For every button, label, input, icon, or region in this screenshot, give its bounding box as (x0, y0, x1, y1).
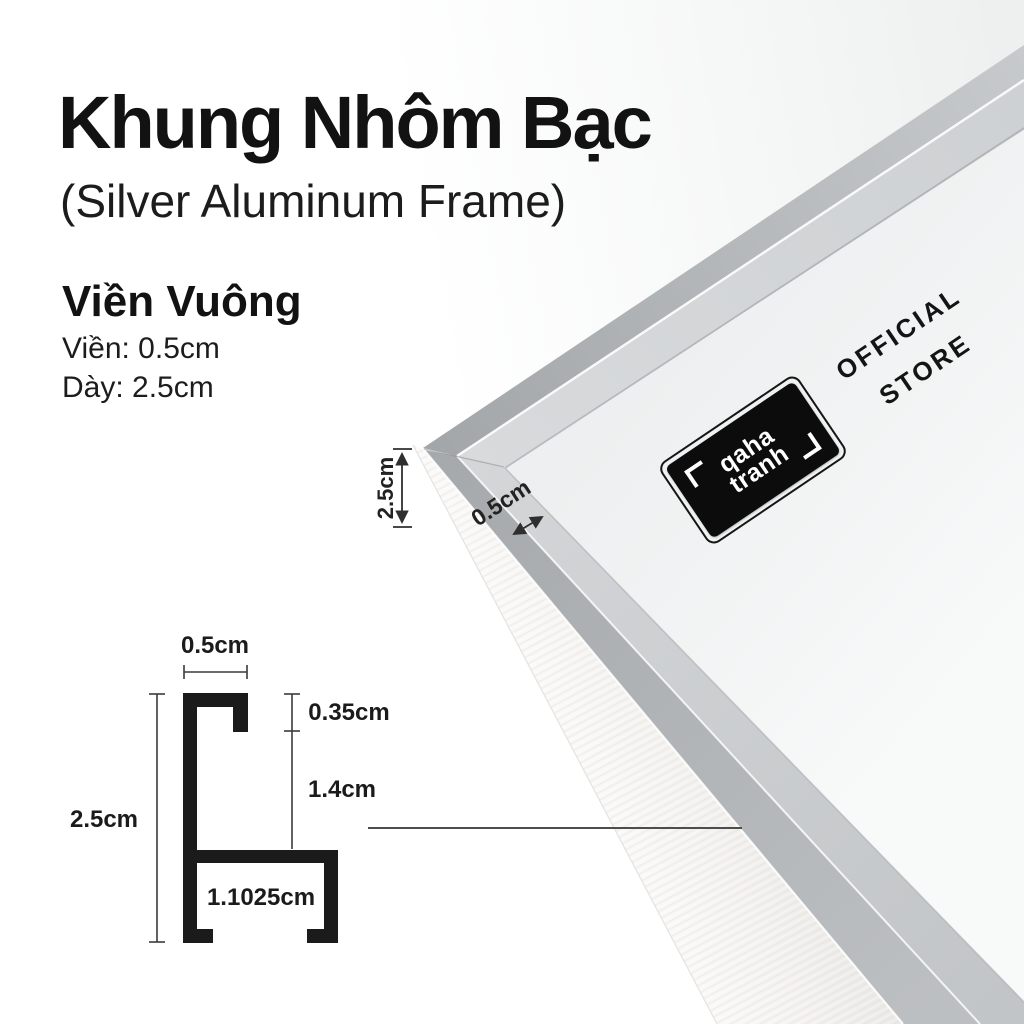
page-subtitle: (Silver Aluminum Frame) (60, 174, 566, 228)
diagram-top-width-label: 0.5cm (181, 632, 249, 660)
spec-heading: Viền Vuông (62, 277, 302, 327)
diagram-inner-depth-label: 1.4cm (308, 776, 376, 804)
crop-mark-left-icon (684, 460, 712, 488)
page-title: Khung Nhôm Bạc (58, 84, 651, 162)
diagram-bottom-width-label: 1.1025cm (207, 884, 315, 912)
infographic-canvas: Khung Nhôm Bạc (Silver Aluminum Frame) V… (0, 0, 1024, 1024)
photo-thickness-label: 2.5cm (373, 457, 399, 519)
spec-thickness-value: Dày: 2.5cm (62, 371, 214, 405)
brand-name: qaha tranh (713, 423, 793, 497)
crop-mark-right-icon (794, 432, 822, 460)
spec-border-value: Viền: 0.5cm (62, 332, 220, 366)
diagram-lip-depth-label: 0.35cm (308, 699, 389, 727)
diagram-height-label: 2.5cm (70, 806, 138, 834)
